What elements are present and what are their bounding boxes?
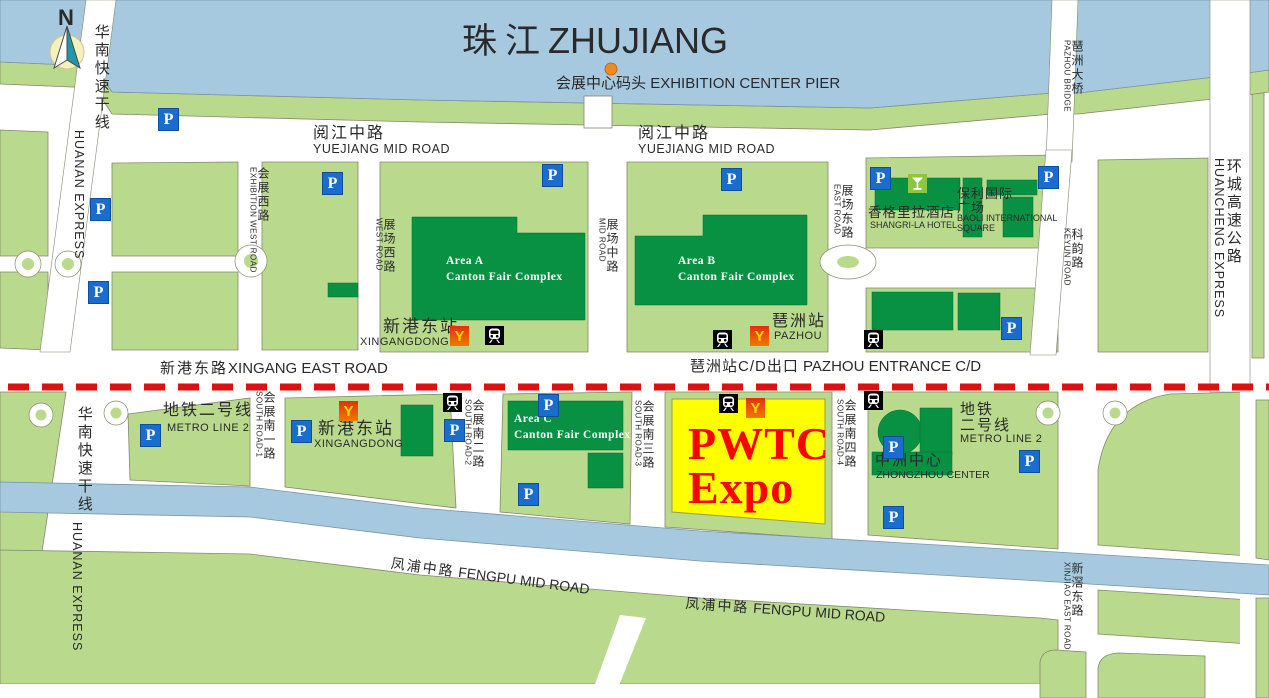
road-label-cn: 展场东路 <box>840 184 853 240</box>
block <box>1040 650 1086 698</box>
river-title: 珠江ZHUJIANG <box>462 22 728 61</box>
exhibition-pier <box>584 96 612 128</box>
pwtc-line1: PWTC <box>688 422 830 466</box>
parking-icon: P <box>88 281 109 304</box>
pwtc-expo-label: PWTC Expo <box>688 422 830 509</box>
building <box>401 405 433 456</box>
pier-label-cn: 会展中心码头 <box>556 75 646 92</box>
road-label-cn: 琶洲大桥 <box>1070 40 1083 96</box>
metro-line2-cn-line1: 地铁 <box>960 402 1042 418</box>
yuejiang-road-label-west: 阅江中路 YUEJIANG MID ROAD <box>313 126 450 156</box>
metro-line2-label-right: 地铁 二号线 METRO LINE 2 <box>960 402 1042 445</box>
metro-station-icon <box>713 330 732 349</box>
block <box>0 130 48 256</box>
metro-line2-en: METRO LINE 2 <box>960 434 1042 446</box>
road-label-en: XINGANG EAST ROAD <box>228 360 388 377</box>
parking-icon: P <box>1038 166 1059 189</box>
building <box>958 293 1000 330</box>
parking-icon: P <box>518 483 539 506</box>
river-title-cn: 珠江 <box>462 22 548 61</box>
south-road-4-label: SOUTH ROAD-4 会展南四路 <box>835 399 856 469</box>
area-b-line2: Canton Fair Complex <box>678 270 795 286</box>
yuejiang-road-label-east: 阅江中路 YUEJIANG MID ROAD <box>638 126 775 156</box>
xingang-east-road-label: 新港东路XINGANG EAST ROAD <box>160 361 388 377</box>
metro-line2-cn-line2: 二号线 <box>960 418 1042 434</box>
block <box>1252 92 1264 358</box>
block <box>1098 158 1208 352</box>
baoli-en-line2: SQUARE <box>957 224 1057 233</box>
block <box>112 272 238 350</box>
block <box>1098 590 1250 644</box>
road-label-cn: 环城高速公路 <box>1225 158 1241 266</box>
road-label-cn: 会展西路 <box>256 167 269 223</box>
west-road-label: WEST ROAD 展场西路 <box>374 218 395 274</box>
shangrila-hotel-label-en: SHANGRI-LA HOTEL <box>870 221 957 230</box>
huanan-express-label-en-top: HUANAN EXPRESS <box>72 130 85 259</box>
pazhou-bridge-label: PAZHOU BRIDGE 琶洲大桥 <box>1062 40 1083 112</box>
road-label-cn: 会展南三路 <box>641 400 654 470</box>
hotel-icon <box>908 174 927 193</box>
parking-icon: P <box>444 419 465 442</box>
xingangdong-south-label-cn: 新港东站 <box>318 420 394 438</box>
parking-icon: P <box>1019 450 1040 473</box>
pier-label-en: EXHIBITION CENTER PIER <box>650 75 840 92</box>
block <box>1256 400 1269 560</box>
parking-icon: P <box>291 420 312 443</box>
south-road-1-label: SOUTH ROAD-1 会展南一路 <box>254 391 275 461</box>
xingangdong-station-label-en: XINGANGDONG <box>360 337 449 349</box>
block <box>1256 598 1269 698</box>
area-a-label: Area A Canton Fair Complex <box>446 254 563 285</box>
metro-line2-label-cn-left: 地铁二号线 <box>163 403 253 420</box>
xingangdong-south-label-en: XINGANGDONG <box>314 439 403 451</box>
block <box>1098 653 1205 698</box>
parking-icon: P <box>538 394 559 417</box>
road-label-cn: 展场中路 <box>605 218 618 274</box>
parking-icon: P <box>140 424 161 447</box>
shangrila-hotel-label-cn: 香格里拉酒店 <box>868 206 955 220</box>
road-label-cn: 新滘东路 <box>1070 562 1083 618</box>
building <box>328 283 358 297</box>
baoli-cn-line2: 广场 <box>957 201 1057 215</box>
huancheng-express-label: HUANCHENG EXPRESS 环城高速公路 <box>1212 158 1241 318</box>
metro-logo-icon: Y <box>746 398 765 418</box>
road-label-en: YUEJIANG MID ROAD <box>638 143 775 156</box>
pazhou-station-label-en: PAZHOU <box>774 331 822 343</box>
pazhou-station-label-cn: 琶洲站 <box>772 314 826 331</box>
pier-dot <box>605 63 617 75</box>
parking-icon: P <box>158 108 179 131</box>
building-zhongzhou <box>920 408 952 455</box>
block <box>0 272 48 350</box>
exhibition-west-road-label: EXHIBITION WEST ROAD 会展西路 <box>248 167 269 273</box>
area-a-line2: Canton Fair Complex <box>446 270 563 286</box>
area-c-line1: Area C <box>514 412 631 428</box>
block <box>262 162 358 350</box>
parking-icon: P <box>542 164 563 187</box>
metro-station-icon <box>485 326 504 345</box>
area-a-line1: Area A <box>446 254 563 270</box>
area-c-label: Area C Canton Fair Complex <box>514 412 631 443</box>
pazhou-entrance-label: 琶洲站C/D出口 PAZHOU ENTRANCE C/D <box>690 359 981 375</box>
entrance-label-en: PAZHOU ENTRANCE C/D <box>803 358 981 375</box>
road-label-en: HUANCHENG EXPRESS <box>1212 158 1225 318</box>
zhongzhou-center-label-en: ZHONGZHOU CENTER <box>876 470 990 481</box>
road-label-cn: 展场西路 <box>382 218 395 274</box>
building <box>588 453 623 488</box>
keyun-road-label: KEYUN ROAD 科韵路 <box>1062 228 1083 286</box>
river-title-en: ZHUJIANG <box>548 20 728 61</box>
road-label-cn: 科韵路 <box>1070 228 1083 270</box>
road-label-cn: 会展南二路 <box>471 399 484 469</box>
east-road-label: EAST ROAD 展场东路 <box>832 184 853 240</box>
south-road-3-label: SOUTH ROAD-3 会展南三路 <box>633 400 654 470</box>
parking-icon: P <box>90 198 111 221</box>
road-label-cn: 新港东路 <box>160 360 228 377</box>
road-label-cn: 阅江中路 <box>638 126 775 143</box>
block <box>112 162 238 256</box>
area-b-label: Area B Canton Fair Complex <box>678 254 795 285</box>
pwtc-line2: Expo <box>688 466 830 510</box>
pier-label: 会展中心码头 EXHIBITION CENTER PIER <box>556 76 840 92</box>
parking-icon: P <box>870 167 891 190</box>
road-label-en: YUEJIANG MID ROAD <box>313 143 450 156</box>
huanan-express-label-cn-top: 华南快速干线 <box>93 24 109 132</box>
huanan-express-label-cn-bottom: 华南快速干线 <box>76 406 92 514</box>
area-b-line1: Area B <box>678 254 795 270</box>
road-label-cn: 会展南一路 <box>262 391 275 461</box>
metro-station-icon <box>443 393 462 412</box>
entrance-label-cn: 琶洲站C/D出口 <box>690 358 799 375</box>
road-label-cn: 阅江中路 <box>313 126 450 143</box>
compass-icon <box>44 22 90 74</box>
parking-icon: P <box>1001 317 1022 340</box>
metro-line2-label-en-left: METRO LINE 2 <box>167 423 249 435</box>
huanan-express-label-en-bottom: HUANAN EXPRESS <box>70 522 83 651</box>
pazhou-canton-fair-map: N 珠江ZHUJIANG 会展中心码头 EXHIBITION CENTER PI… <box>0 0 1269 698</box>
xingangdong-station-label-cn: 新港东站 <box>383 318 459 336</box>
metro-logo-icon: Y <box>450 326 469 346</box>
parking-icon: P <box>721 168 742 191</box>
area-c-line2: Canton Fair Complex <box>514 428 631 444</box>
metro-logo-icon: Y <box>750 326 769 346</box>
metro-station-icon <box>864 330 883 349</box>
building <box>872 292 953 330</box>
parking-icon: P <box>322 172 343 195</box>
xinjiao-east-road-label: XINJIAO EAST ROAD 新滘东路 <box>1062 562 1083 650</box>
south-road-2-label: SOUTH ROAD-2 会展南二路 <box>463 399 484 469</box>
road-label-cn: 会展南四路 <box>843 399 856 469</box>
baoli-square-label: 保利国际 广场 BAOLI INTERNATIONAL SQUARE <box>957 187 1057 233</box>
metro-logo-icon: Y <box>339 401 358 421</box>
metro-station-icon <box>719 394 738 413</box>
baoli-cn-line1: 保利国际 <box>957 187 1057 201</box>
mid-road-label: MID ROAD 展场中路 <box>597 218 618 274</box>
parking-icon: P <box>883 506 904 529</box>
road-huancheng-south <box>1240 392 1252 698</box>
parking-icon: P <box>883 436 904 459</box>
metro-station-icon <box>864 391 883 410</box>
